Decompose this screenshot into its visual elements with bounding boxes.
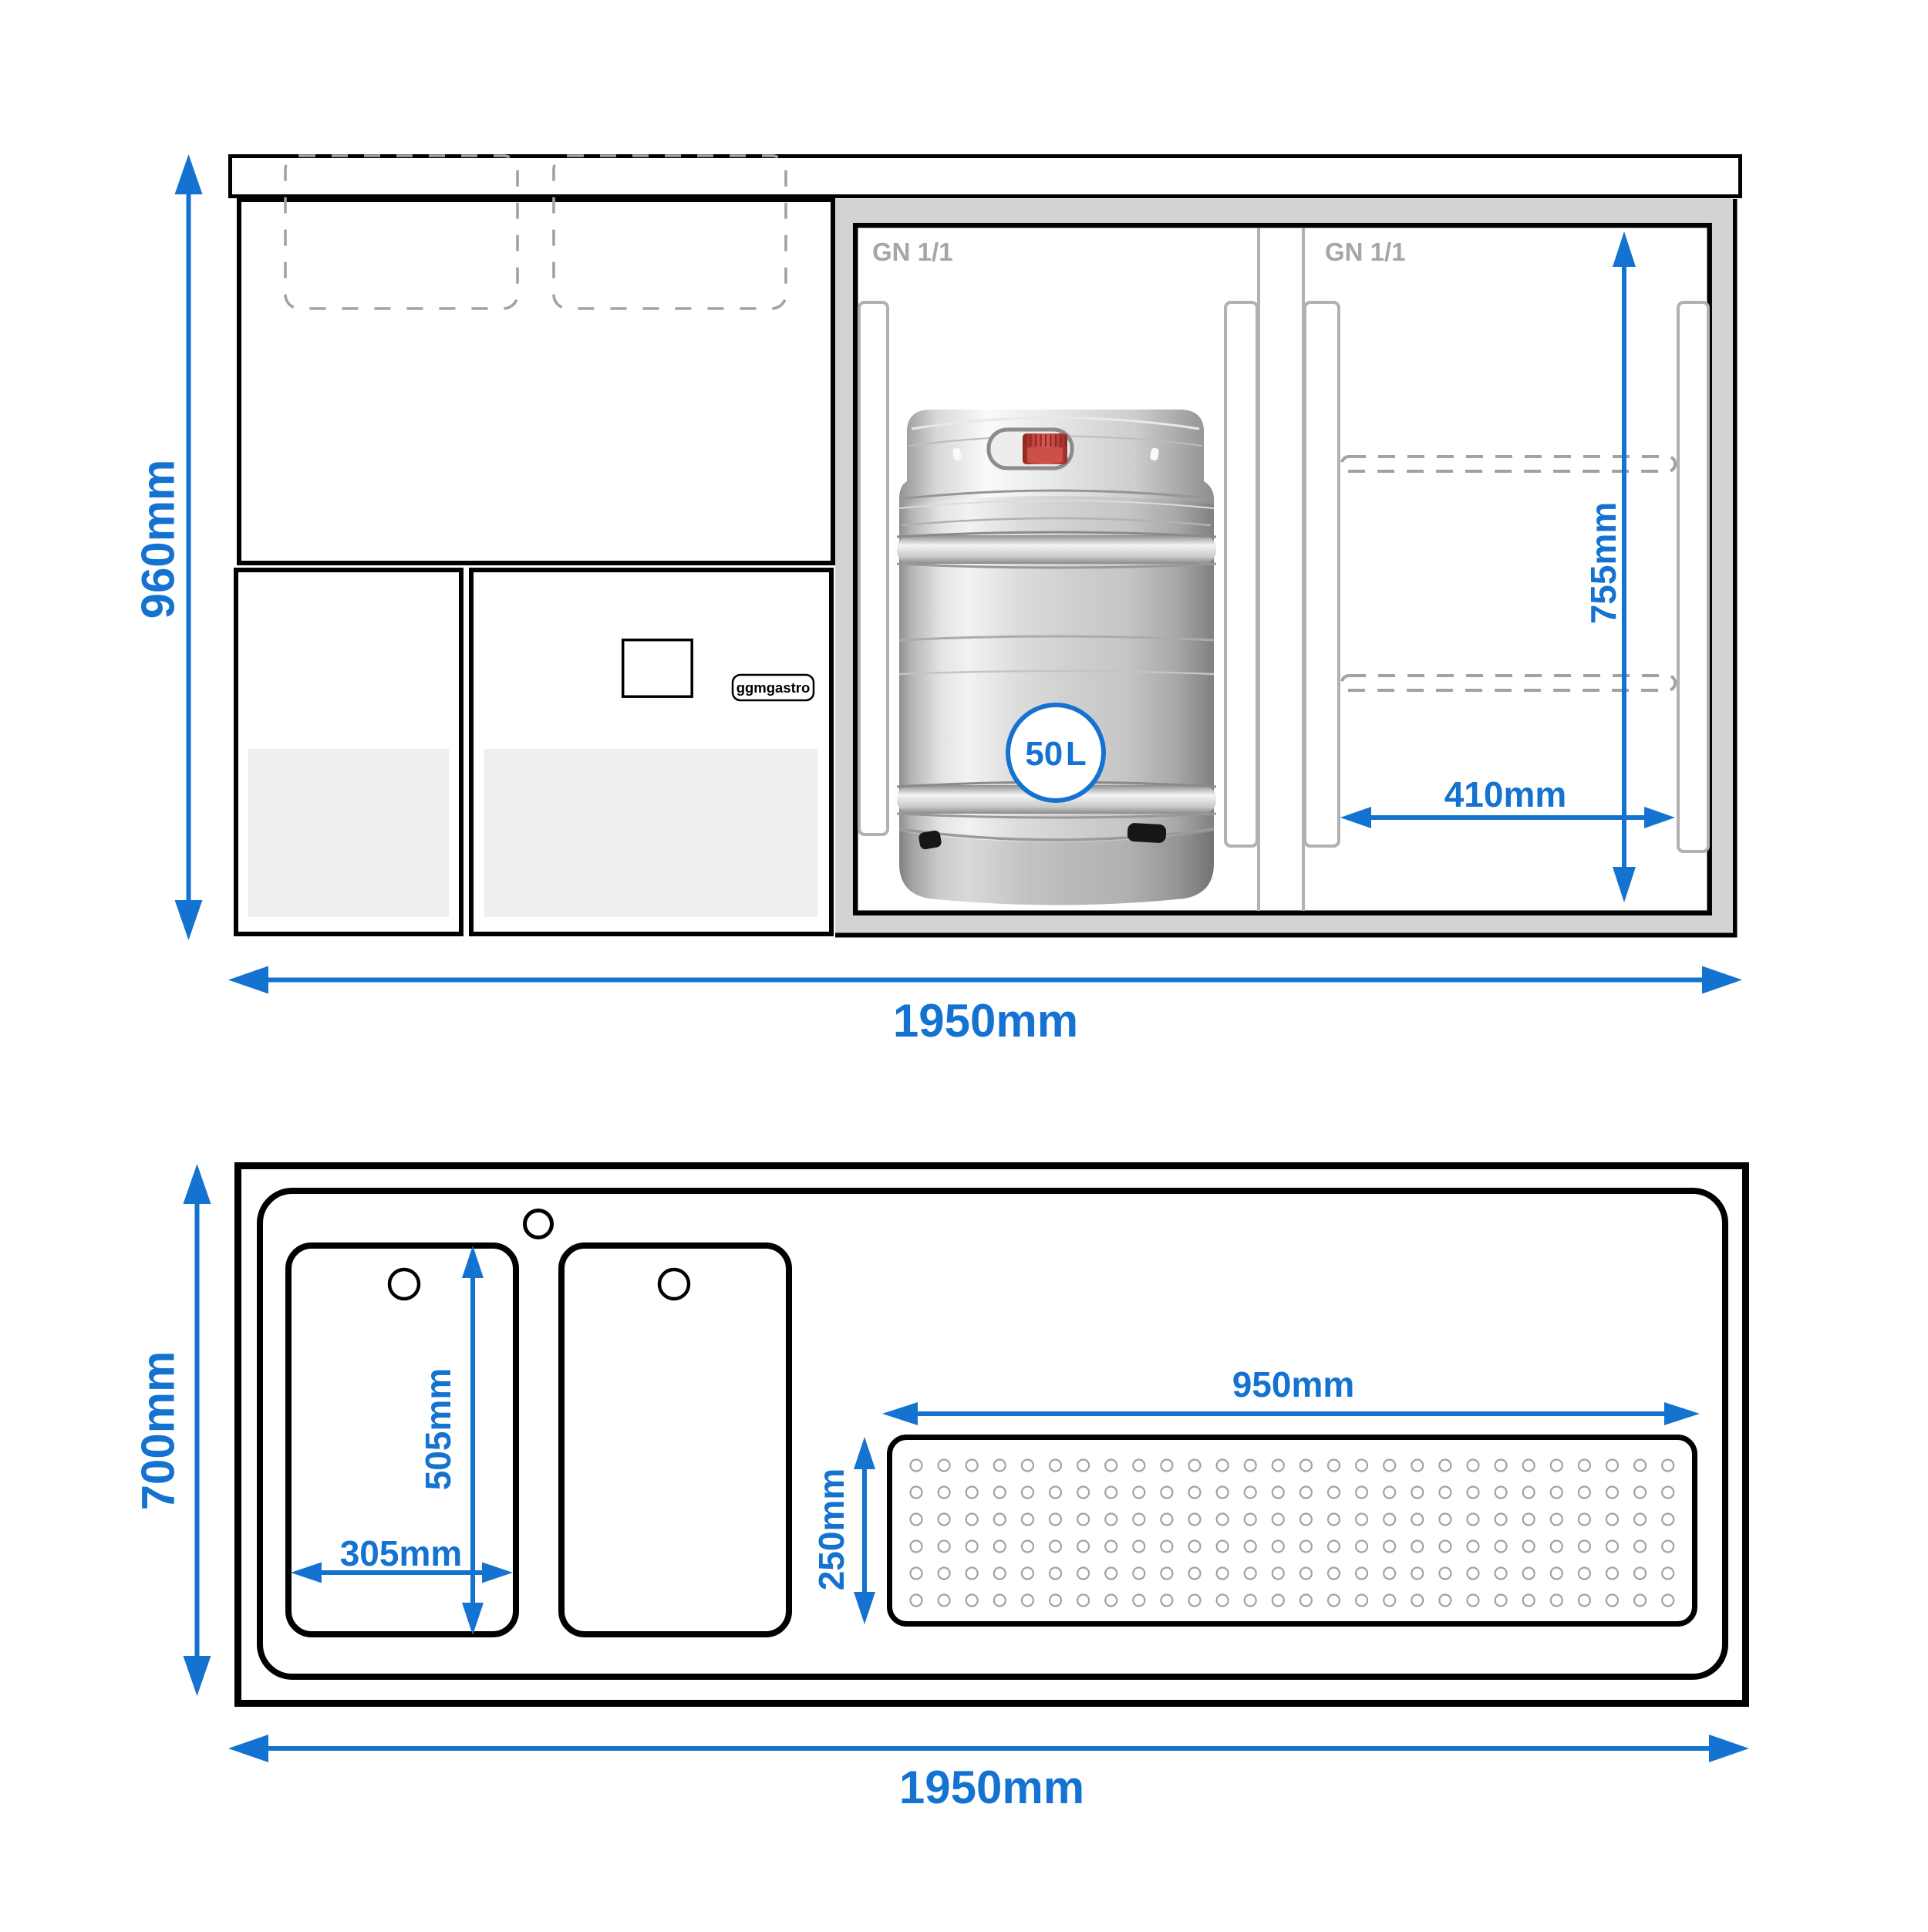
svg-text:GN 1/1: GN 1/1 (1325, 238, 1406, 266)
svg-text:700mm: 700mm (133, 1351, 184, 1511)
svg-text:1950mm: 1950mm (893, 995, 1078, 1047)
svg-text:GN 1/1: GN 1/1 (872, 238, 953, 266)
svg-text:ggmgastro: ggmgastro (736, 679, 811, 696)
svg-text:410mm: 410mm (1444, 774, 1567, 814)
svg-text:250mm: 250mm (811, 1468, 851, 1591)
svg-text:305mm: 305mm (340, 1533, 463, 1573)
svg-text:1950mm: 1950mm (899, 1762, 1084, 1813)
svg-text:960mm: 960mm (133, 460, 184, 619)
svg-text:50 L: 50 L (1025, 735, 1087, 773)
svg-text:755mm: 755mm (1583, 502, 1623, 625)
svg-text:505mm: 505mm (418, 1368, 458, 1491)
svg-text:950mm: 950mm (1232, 1364, 1355, 1404)
